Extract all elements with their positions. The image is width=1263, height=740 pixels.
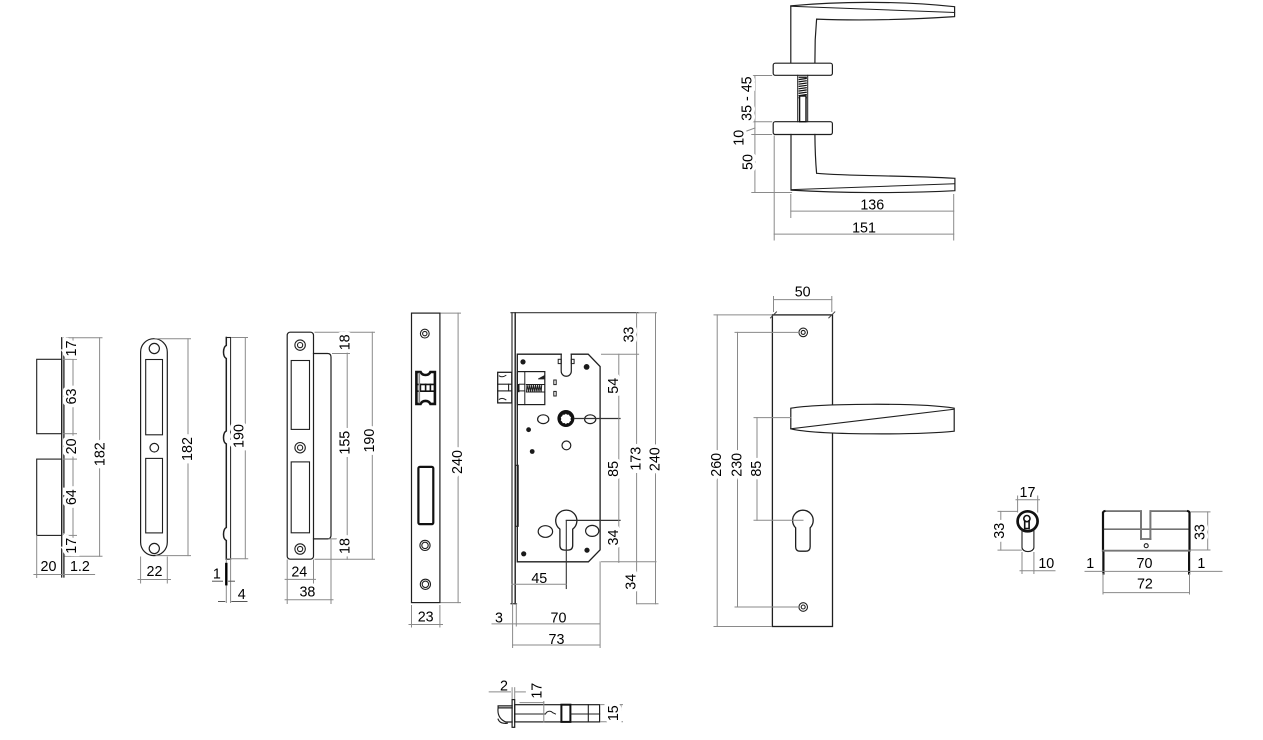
svg-text:22: 22: [147, 564, 163, 580]
svg-text:73: 73: [549, 632, 565, 648]
svg-text:18: 18: [338, 334, 354, 350]
svg-text:2: 2: [500, 679, 508, 695]
svg-text:155: 155: [338, 431, 354, 455]
svg-text:20: 20: [41, 559, 57, 575]
svg-text:85: 85: [749, 461, 765, 477]
svg-text:70: 70: [551, 611, 567, 627]
svg-text:18: 18: [338, 538, 354, 554]
svg-text:50: 50: [795, 285, 811, 301]
svg-text:136: 136: [860, 198, 884, 214]
svg-text:1: 1: [1086, 556, 1094, 572]
svg-text:34: 34: [606, 530, 622, 546]
svg-text:151: 151: [852, 221, 876, 237]
svg-text:70: 70: [1137, 556, 1153, 572]
svg-text:34: 34: [624, 574, 640, 590]
svg-text:190: 190: [232, 424, 248, 448]
svg-text:240: 240: [450, 450, 466, 474]
svg-text:240: 240: [648, 447, 664, 471]
svg-text:4: 4: [238, 587, 246, 603]
svg-text:17: 17: [64, 341, 80, 357]
svg-text:1: 1: [213, 567, 221, 583]
svg-text:35 - 45: 35 - 45: [740, 76, 756, 121]
svg-text:63: 63: [64, 389, 80, 405]
svg-text:33: 33: [1193, 524, 1209, 540]
svg-text:38: 38: [299, 585, 315, 601]
svg-text:1: 1: [1197, 556, 1205, 572]
svg-text:15: 15: [606, 705, 622, 721]
svg-text:45: 45: [531, 571, 547, 587]
svg-text:182: 182: [93, 442, 109, 466]
svg-text:33: 33: [992, 523, 1008, 539]
svg-text:3: 3: [495, 611, 503, 627]
svg-text:50: 50: [741, 154, 757, 170]
svg-text:20: 20: [64, 438, 80, 454]
svg-text:190: 190: [362, 429, 378, 453]
svg-text:17: 17: [64, 538, 80, 554]
svg-text:23: 23: [418, 609, 434, 625]
svg-text:182: 182: [180, 437, 196, 461]
svg-text:85: 85: [606, 461, 622, 477]
svg-text:1.2: 1.2: [70, 559, 90, 575]
svg-text:230: 230: [730, 453, 746, 477]
svg-text:173: 173: [629, 447, 645, 471]
svg-text:17: 17: [530, 683, 546, 699]
svg-text:10: 10: [1038, 556, 1054, 572]
svg-text:24: 24: [291, 564, 307, 580]
svg-text:260: 260: [709, 453, 725, 477]
svg-text:64: 64: [64, 489, 80, 505]
svg-text:17: 17: [1020, 485, 1036, 501]
svg-text:54: 54: [606, 378, 622, 394]
svg-text:33: 33: [622, 327, 638, 343]
svg-text:10: 10: [732, 130, 748, 146]
svg-text:72: 72: [1137, 577, 1153, 593]
